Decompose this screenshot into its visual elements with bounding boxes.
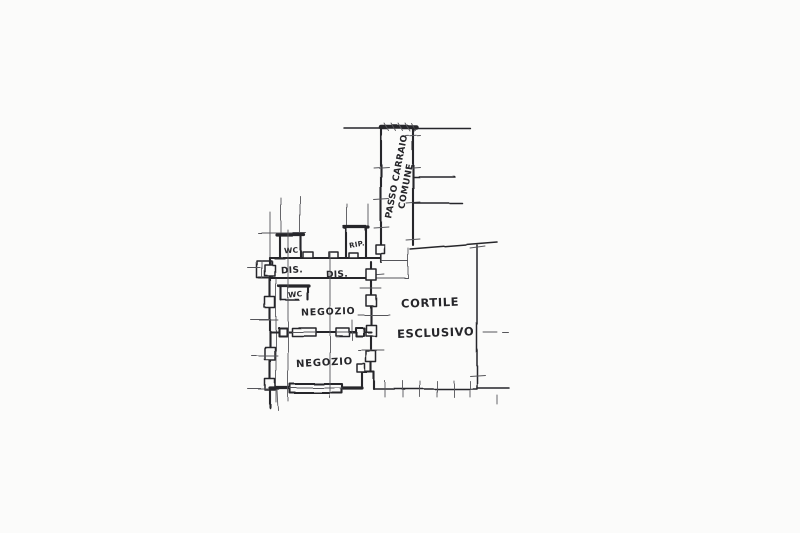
- wall-hatch: [265, 347, 275, 360]
- upper-annex: [248, 196, 408, 300]
- wall-hatch: [376, 245, 385, 254]
- label-dis-center: DIS.: [326, 270, 348, 281]
- label-dis-left: DIS.: [281, 265, 303, 276]
- label-esclusivo: ESCLUSIVO: [397, 324, 475, 341]
- floor-plan-drawing: PASSO CARRAIO COMUNE: [0, 0, 800, 533]
- label-cortile: CORTILE: [401, 295, 460, 311]
- gate-hatch: [381, 123, 416, 131]
- wall-hatch: [366, 325, 376, 336]
- label-rip: RIP.: [349, 239, 366, 250]
- scanned-floor-plan-page: PASSO CARRAIO COMUNE: [0, 0, 800, 533]
- wall-hatch: [366, 295, 376, 306]
- door-threshold: [303, 252, 313, 258]
- shop-window: [290, 384, 342, 393]
- label-wc-lower: WC: [288, 289, 303, 299]
- courtyard-boundary: [374, 242, 509, 404]
- wall-hatch: [366, 351, 376, 362]
- wall-hatch: [265, 265, 275, 276]
- door-threshold: [349, 253, 358, 258]
- pillar: [356, 328, 364, 336]
- pillar: [279, 328, 287, 336]
- wall-hatch: [357, 364, 365, 372]
- label-negozio-lower: NEGOZIO: [296, 356, 353, 370]
- label-negozio-upper: NEGOZIO: [301, 306, 356, 319]
- wall-hatch: [265, 297, 275, 308]
- label-wc-top: WC: [284, 245, 299, 255]
- wall-hatch: [366, 269, 376, 280]
